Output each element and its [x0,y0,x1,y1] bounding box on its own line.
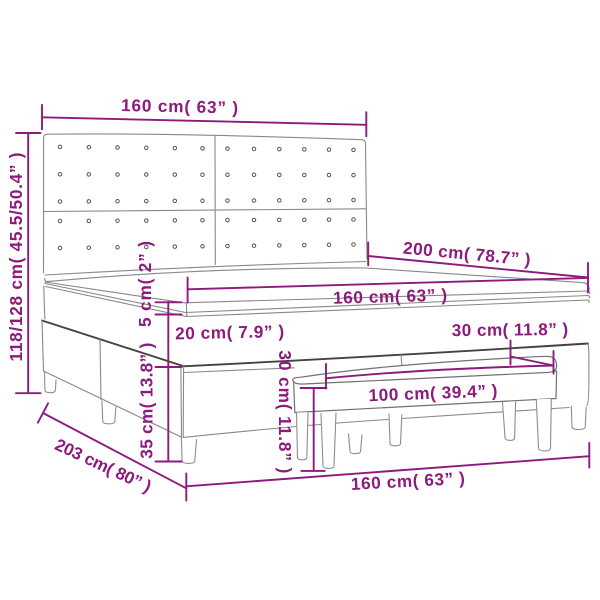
svg-text:118/128 cm( 45.5/50.4” ): 118/128 cm( 45.5/50.4” ) [6,153,26,362]
svg-text:160 cm( 63” ): 160 cm( 63” ) [333,285,448,308]
svg-text:160 cm( 63” ): 160 cm( 63” ) [121,95,238,118]
svg-text:35 cm( 13.8” ): 35 cm( 13.8” ) [137,343,157,459]
svg-text:5 cm( 2” ): 5 cm( 2” ) [135,241,155,327]
svg-text:30 cm( 11.8” ): 30 cm( 11.8” ) [452,319,569,340]
svg-text:30 cm( 11.8” ): 30 cm( 11.8” ) [275,350,295,473]
svg-text:20 cm( 7.9” ): 20 cm( 7.9” ) [175,321,284,343]
